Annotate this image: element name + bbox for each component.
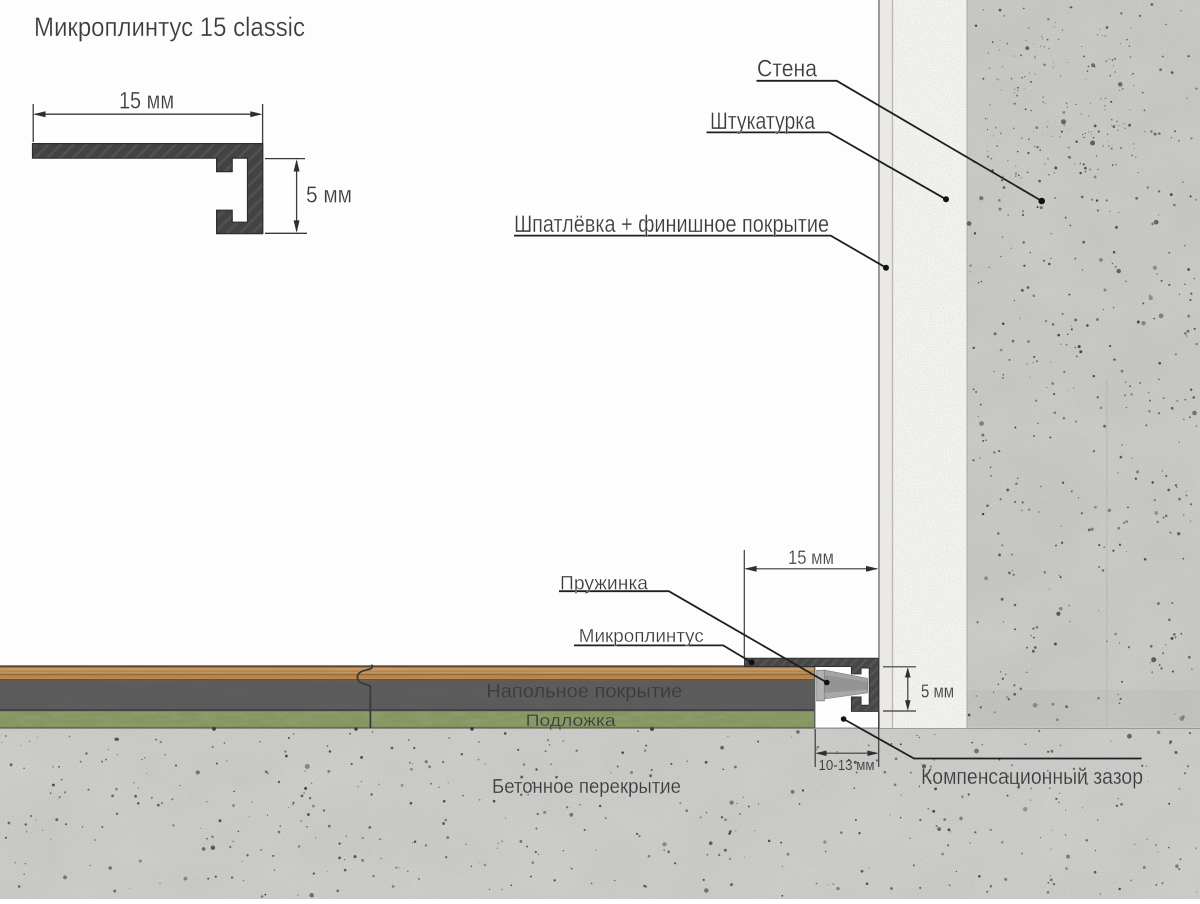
svg-text:Шпатлёвка + финишное покрытие: Шпатлёвка + финишное покрытие bbox=[514, 211, 829, 238]
svg-text:15 мм: 15 мм bbox=[788, 548, 834, 569]
svg-text:Напольное покрытие: Напольное покрытие bbox=[486, 681, 682, 703]
svg-text:Компенсационный зазор: Компенсационный зазор bbox=[921, 764, 1143, 789]
svg-text:5 мм: 5 мм bbox=[306, 182, 352, 208]
svg-text:15 мм: 15 мм bbox=[119, 88, 174, 115]
svg-text:Пружинка: Пружинка bbox=[560, 573, 648, 595]
svg-text:Бетонное перекрытие: Бетонное перекрытие bbox=[492, 776, 681, 798]
svg-text:Стена: Стена bbox=[757, 56, 818, 83]
svg-text:Штукатурка: Штукатурка bbox=[710, 108, 816, 135]
svg-text:5 мм: 5 мм bbox=[921, 681, 954, 702]
svg-text:Микроплинтус 15 classic: Микроплинтус 15 classic bbox=[34, 12, 305, 42]
svg-text:10-13 мм: 10-13 мм bbox=[819, 758, 875, 774]
svg-text:Подложка: Подложка bbox=[526, 711, 617, 730]
svg-text:Микроплинтус: Микроплинтус bbox=[579, 626, 704, 646]
